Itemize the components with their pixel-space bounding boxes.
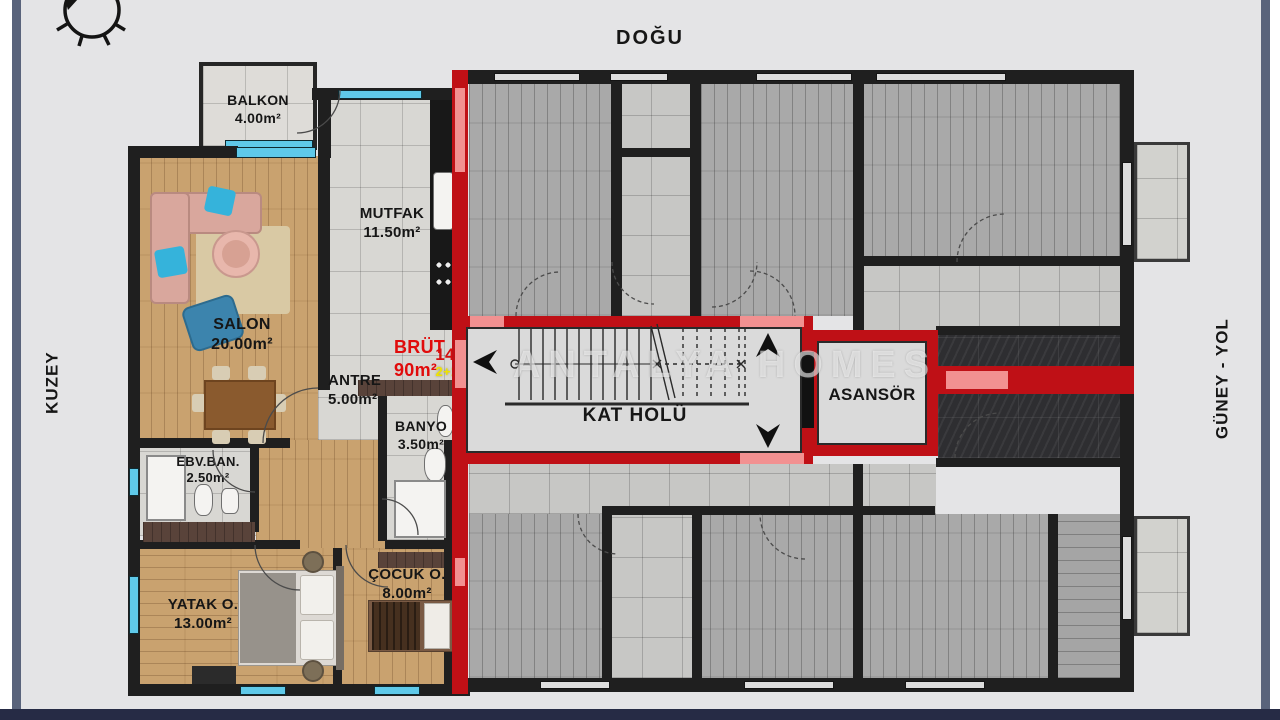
door-swing-arcs: [213, 90, 1005, 590]
stair-up-arrow-icon: [756, 333, 780, 357]
unit-entry-arrow-icon: [473, 350, 497, 374]
hall-label: KAT HOLÜ: [560, 404, 710, 428]
floor-plan-page: DOĞU KUZEY GÜNEY - YOL: [0, 0, 1280, 720]
plan-line-overlay: [0, 0, 1280, 720]
elevator-label: ASANSÖR: [812, 384, 932, 405]
stair-down-arrow-icon: [756, 424, 780, 448]
